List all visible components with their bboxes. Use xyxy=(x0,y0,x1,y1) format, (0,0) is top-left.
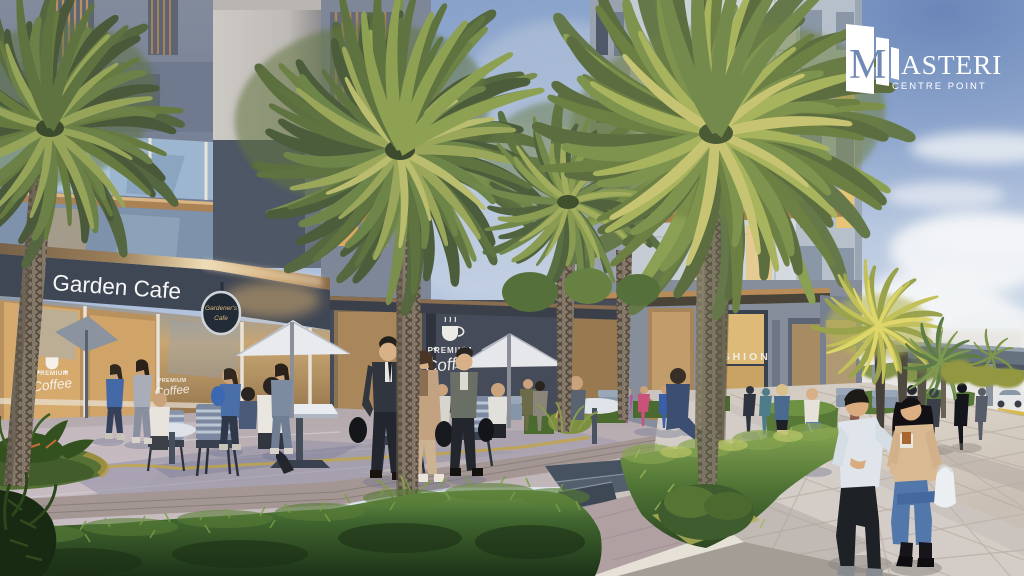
svg-text:★: ★ xyxy=(63,368,68,375)
svg-text:Cafe: Cafe xyxy=(214,315,228,322)
svg-text:★: ★ xyxy=(432,345,438,353)
svg-text:M: M xyxy=(849,42,886,88)
svg-text:CENTRE POINT: CENTRE POINT xyxy=(892,81,987,92)
svg-text:ASTERI: ASTERI xyxy=(901,49,1002,80)
svg-text:Gardener's: Gardener's xyxy=(205,305,238,312)
